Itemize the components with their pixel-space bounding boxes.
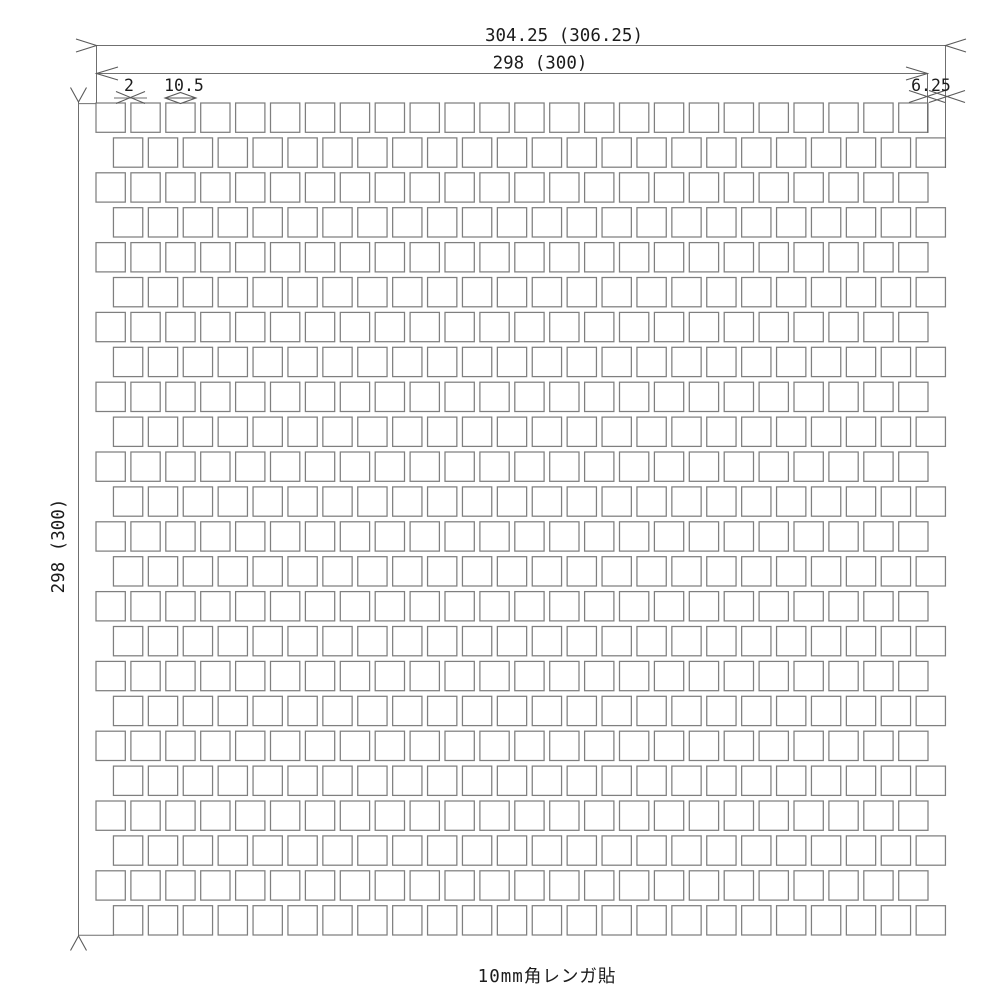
tile <box>428 487 457 516</box>
tile <box>759 103 788 132</box>
tile <box>271 661 300 690</box>
tile <box>550 312 579 341</box>
tile <box>462 696 491 725</box>
tile <box>253 906 282 935</box>
tile <box>218 627 247 656</box>
tile <box>724 382 753 411</box>
tile <box>829 661 858 690</box>
tile <box>532 347 561 376</box>
tile <box>602 557 631 586</box>
tile <box>794 382 823 411</box>
tile <box>113 557 142 586</box>
tile <box>916 906 945 935</box>
tile <box>829 243 858 272</box>
tile <box>480 452 509 481</box>
tile <box>585 312 614 341</box>
dim-text-row-offset: 6.25 <box>911 76 951 95</box>
tile <box>811 906 840 935</box>
tile <box>288 138 317 167</box>
tile <box>532 417 561 446</box>
tile <box>236 103 265 132</box>
tile <box>340 452 369 481</box>
tile <box>707 557 736 586</box>
tile <box>271 522 300 551</box>
tile <box>550 243 579 272</box>
tile <box>794 661 823 690</box>
tile <box>846 557 875 586</box>
tile <box>637 487 666 516</box>
tile <box>637 836 666 865</box>
tile <box>271 801 300 830</box>
tile <box>201 452 230 481</box>
tile <box>462 766 491 795</box>
tile <box>462 347 491 376</box>
tile <box>916 766 945 795</box>
tile <box>131 801 160 830</box>
tile <box>166 243 195 272</box>
tile <box>96 103 125 132</box>
tile <box>515 452 544 481</box>
tile <box>637 696 666 725</box>
tile <box>358 138 387 167</box>
tile <box>881 836 910 865</box>
tile <box>515 592 544 621</box>
tile <box>550 382 579 411</box>
tile <box>113 836 142 865</box>
tile <box>794 312 823 341</box>
tile <box>113 278 142 307</box>
tile <box>236 871 265 900</box>
tile <box>445 103 474 132</box>
tile <box>811 278 840 307</box>
tile <box>183 696 212 725</box>
tile <box>585 731 614 760</box>
tile <box>777 347 806 376</box>
tile <box>742 696 771 725</box>
tile <box>515 522 544 551</box>
tile <box>585 452 614 481</box>
tile <box>724 731 753 760</box>
tile <box>864 312 893 341</box>
tile <box>375 173 404 202</box>
tile <box>864 592 893 621</box>
tile <box>113 627 142 656</box>
tile <box>689 173 718 202</box>
tile <box>864 452 893 481</box>
tile <box>602 766 631 795</box>
tile <box>777 487 806 516</box>
tile <box>602 417 631 446</box>
tile <box>794 522 823 551</box>
tile <box>183 557 212 586</box>
tile <box>742 347 771 376</box>
tile <box>759 312 788 341</box>
tile <box>759 173 788 202</box>
tile <box>777 836 806 865</box>
tile <box>218 278 247 307</box>
tile <box>305 173 334 202</box>
tile <box>829 103 858 132</box>
tile <box>829 173 858 202</box>
tile <box>567 906 596 935</box>
tile <box>829 382 858 411</box>
tile <box>689 801 718 830</box>
tile <box>724 103 753 132</box>
tile <box>654 731 683 760</box>
tile <box>166 452 195 481</box>
tile <box>899 312 928 341</box>
tile <box>899 592 928 621</box>
tile <box>497 138 526 167</box>
tile <box>480 103 509 132</box>
tile <box>881 138 910 167</box>
tile <box>96 661 125 690</box>
tile <box>253 487 282 516</box>
tile <box>567 278 596 307</box>
tile <box>410 801 439 830</box>
tile <box>916 208 945 237</box>
tile <box>113 906 142 935</box>
tile <box>759 731 788 760</box>
tile <box>811 836 840 865</box>
tile <box>410 312 439 341</box>
tile <box>462 138 491 167</box>
tile <box>899 103 928 132</box>
tile <box>218 766 247 795</box>
tile <box>201 731 230 760</box>
tile <box>654 661 683 690</box>
tile <box>218 557 247 586</box>
tile <box>550 731 579 760</box>
tile <box>393 696 422 725</box>
arrow-overall-left <box>76 39 97 52</box>
tile <box>654 522 683 551</box>
tile <box>585 801 614 830</box>
tile <box>567 208 596 237</box>
tile <box>899 871 928 900</box>
tile <box>707 696 736 725</box>
tile <box>550 592 579 621</box>
tile <box>183 347 212 376</box>
tile <box>393 836 422 865</box>
tile <box>864 661 893 690</box>
tile <box>846 487 875 516</box>
tile <box>480 243 509 272</box>
tile <box>550 661 579 690</box>
tile <box>480 731 509 760</box>
tile <box>550 103 579 132</box>
tile <box>707 906 736 935</box>
tile <box>742 766 771 795</box>
tile <box>113 417 142 446</box>
tile <box>515 312 544 341</box>
tile <box>166 382 195 411</box>
arrow-height-bottom <box>71 936 87 951</box>
tile <box>305 382 334 411</box>
tile <box>515 173 544 202</box>
tile <box>218 487 247 516</box>
tile <box>724 522 753 551</box>
tile <box>96 522 125 551</box>
dim-text-sheet-width: 298 (300) <box>493 54 588 74</box>
tile <box>585 592 614 621</box>
tile <box>462 278 491 307</box>
tile <box>742 487 771 516</box>
tile <box>759 243 788 272</box>
tile <box>707 138 736 167</box>
tile <box>777 696 806 725</box>
tile <box>375 243 404 272</box>
tile <box>585 871 614 900</box>
tile <box>445 871 474 900</box>
tile <box>96 801 125 830</box>
tile <box>271 312 300 341</box>
tile <box>497 906 526 935</box>
tile <box>218 138 247 167</box>
tile <box>358 278 387 307</box>
tile <box>166 731 195 760</box>
tile <box>305 592 334 621</box>
tile <box>829 731 858 760</box>
tile <box>689 731 718 760</box>
tile <box>672 557 701 586</box>
tile <box>881 696 910 725</box>
tile <box>131 522 160 551</box>
tile <box>759 661 788 690</box>
tile <box>340 173 369 202</box>
tile <box>201 522 230 551</box>
tile <box>166 801 195 830</box>
tile <box>445 592 474 621</box>
tile <box>899 243 928 272</box>
tile <box>724 801 753 830</box>
tile <box>288 906 317 935</box>
tile <box>96 312 125 341</box>
tile <box>462 208 491 237</box>
tile <box>672 836 701 865</box>
tile <box>497 347 526 376</box>
tile <box>707 347 736 376</box>
tile <box>672 347 701 376</box>
tile <box>567 836 596 865</box>
tile <box>375 871 404 900</box>
tile <box>864 522 893 551</box>
tile <box>323 557 352 586</box>
tile <box>550 801 579 830</box>
tile <box>497 487 526 516</box>
tile <box>777 906 806 935</box>
tile <box>602 208 631 237</box>
tile <box>288 836 317 865</box>
tile <box>375 801 404 830</box>
tile <box>166 173 195 202</box>
tile <box>567 417 596 446</box>
tile <box>428 347 457 376</box>
tile <box>340 382 369 411</box>
tile <box>742 906 771 935</box>
tile <box>183 417 212 446</box>
tile <box>236 312 265 341</box>
tile <box>113 208 142 237</box>
tile <box>497 766 526 795</box>
tile <box>166 522 195 551</box>
tile <box>288 487 317 516</box>
tile <box>672 766 701 795</box>
tile <box>305 452 334 481</box>
tile <box>620 661 649 690</box>
tile <box>428 138 457 167</box>
tile <box>567 347 596 376</box>
tile <box>445 661 474 690</box>
tile <box>236 801 265 830</box>
tile <box>428 696 457 725</box>
tile <box>288 208 317 237</box>
tile <box>672 417 701 446</box>
tile <box>340 103 369 132</box>
tile <box>253 557 282 586</box>
tile <box>497 278 526 307</box>
tile <box>96 173 125 202</box>
tile <box>96 592 125 621</box>
tile <box>532 906 561 935</box>
tile <box>131 592 160 621</box>
tile <box>410 382 439 411</box>
tile <box>707 627 736 656</box>
tile <box>201 173 230 202</box>
tile <box>148 278 177 307</box>
tile <box>428 627 457 656</box>
tile <box>637 347 666 376</box>
tile <box>393 906 422 935</box>
tile <box>131 731 160 760</box>
tile <box>131 661 160 690</box>
tile <box>480 382 509 411</box>
tile <box>480 173 509 202</box>
tile <box>689 452 718 481</box>
tile <box>410 871 439 900</box>
tile <box>881 278 910 307</box>
tile <box>637 557 666 586</box>
tile <box>550 871 579 900</box>
tile <box>620 173 649 202</box>
tile <box>585 103 614 132</box>
tile <box>916 138 945 167</box>
tile <box>881 627 910 656</box>
tile <box>393 138 422 167</box>
tile <box>271 731 300 760</box>
tile <box>672 906 701 935</box>
tile <box>602 836 631 865</box>
tile <box>742 208 771 237</box>
tile <box>253 278 282 307</box>
tile <box>707 836 736 865</box>
tile <box>323 696 352 725</box>
tile <box>131 173 160 202</box>
arrow-overall-right <box>946 39 967 52</box>
tile <box>358 347 387 376</box>
tile <box>201 661 230 690</box>
tile <box>620 243 649 272</box>
tile <box>794 103 823 132</box>
tile <box>375 522 404 551</box>
tile <box>620 452 649 481</box>
tile <box>916 627 945 656</box>
tile <box>340 522 369 551</box>
tile <box>515 103 544 132</box>
tile <box>899 173 928 202</box>
tile <box>811 696 840 725</box>
tile <box>410 522 439 551</box>
tile <box>654 592 683 621</box>
tile <box>393 766 422 795</box>
tile <box>620 592 649 621</box>
tile <box>759 382 788 411</box>
tile <box>288 347 317 376</box>
tile <box>253 347 282 376</box>
tile <box>445 731 474 760</box>
tile <box>620 382 649 411</box>
tile <box>602 627 631 656</box>
tile <box>218 696 247 725</box>
tile <box>532 836 561 865</box>
tile <box>742 836 771 865</box>
tile <box>846 138 875 167</box>
tile <box>497 557 526 586</box>
tile <box>620 871 649 900</box>
tile <box>393 627 422 656</box>
tile <box>148 696 177 725</box>
tile <box>881 906 910 935</box>
tile <box>428 208 457 237</box>
tile <box>253 627 282 656</box>
tile <box>410 452 439 481</box>
tile <box>375 312 404 341</box>
tile <box>113 487 142 516</box>
tile <box>183 487 212 516</box>
tile <box>759 871 788 900</box>
tile <box>96 452 125 481</box>
tile <box>916 557 945 586</box>
tile <box>96 871 125 900</box>
tile <box>829 452 858 481</box>
tile <box>201 103 230 132</box>
tile <box>480 661 509 690</box>
tile <box>829 801 858 830</box>
tile <box>201 382 230 411</box>
tile <box>654 312 683 341</box>
tile <box>462 487 491 516</box>
tile <box>462 417 491 446</box>
tile <box>445 522 474 551</box>
tile <box>811 208 840 237</box>
tile <box>305 103 334 132</box>
tile <box>916 347 945 376</box>
tile <box>811 627 840 656</box>
tile <box>585 661 614 690</box>
tile <box>532 627 561 656</box>
tile-sheet-drawing: 304.25 (306.25) 298 (300) 298 (300) 2 10… <box>0 0 1000 1000</box>
tile <box>462 627 491 656</box>
tile <box>864 731 893 760</box>
tile <box>183 278 212 307</box>
tile <box>759 801 788 830</box>
tile <box>236 173 265 202</box>
tile <box>148 487 177 516</box>
tile <box>846 766 875 795</box>
tile <box>567 696 596 725</box>
tile <box>532 557 561 586</box>
tile <box>358 766 387 795</box>
